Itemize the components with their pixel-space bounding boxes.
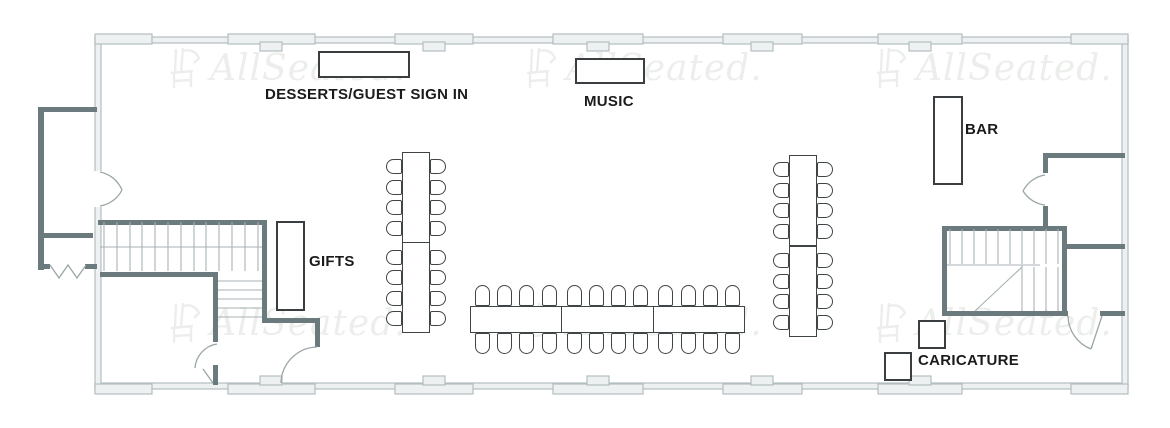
caricature-table-2[interactable] bbox=[884, 352, 912, 381]
label-bar: BAR bbox=[965, 121, 998, 138]
chair[interactable] bbox=[430, 311, 446, 326]
chair[interactable] bbox=[703, 285, 718, 306]
chair[interactable] bbox=[430, 270, 446, 285]
chair[interactable] bbox=[519, 285, 534, 306]
chair[interactable] bbox=[658, 285, 673, 306]
chair[interactable] bbox=[567, 285, 582, 306]
chair[interactable] bbox=[611, 333, 626, 354]
chair[interactable] bbox=[386, 291, 402, 306]
chair[interactable] bbox=[519, 333, 534, 354]
chair[interactable] bbox=[773, 294, 789, 309]
left-door-opening bbox=[93, 171, 103, 207]
chair[interactable] bbox=[633, 333, 648, 354]
label-caricature: CARICATURE bbox=[918, 352, 1019, 369]
chair[interactable] bbox=[773, 253, 789, 268]
chair[interactable] bbox=[386, 180, 402, 195]
chair[interactable] bbox=[658, 333, 673, 354]
chair[interactable] bbox=[386, 221, 402, 236]
chair[interactable] bbox=[681, 333, 696, 354]
floorplan-canvas: DESSERTS/GUEST SIGN IN MUSIC BAR GIFTS C… bbox=[0, 0, 1170, 428]
head-table-divider bbox=[653, 306, 655, 333]
chair[interactable] bbox=[430, 200, 446, 215]
banquet-table-left-divider bbox=[402, 242, 430, 244]
chair[interactable] bbox=[386, 250, 402, 265]
chair[interactable] bbox=[703, 333, 718, 354]
chair[interactable] bbox=[773, 203, 789, 218]
dessert-guest-sign-in-table[interactable] bbox=[318, 51, 410, 78]
chair[interactable] bbox=[475, 285, 490, 306]
chair[interactable] bbox=[386, 200, 402, 215]
chair[interactable] bbox=[773, 162, 789, 177]
chair[interactable] bbox=[817, 183, 833, 198]
label-desserts-guest-sign-in: DESSERTS/GUEST SIGN IN bbox=[265, 86, 468, 103]
head-table[interactable] bbox=[470, 306, 745, 333]
chair[interactable] bbox=[386, 311, 402, 326]
chair[interactable] bbox=[589, 333, 604, 354]
chair[interactable] bbox=[725, 333, 740, 354]
chair[interactable] bbox=[430, 180, 446, 195]
chair[interactable] bbox=[542, 285, 557, 306]
chair[interactable] bbox=[542, 333, 557, 354]
chair[interactable] bbox=[567, 333, 582, 354]
chair[interactable] bbox=[497, 285, 512, 306]
chair[interactable] bbox=[386, 159, 402, 174]
chair[interactable] bbox=[773, 315, 789, 330]
chair[interactable] bbox=[430, 221, 446, 236]
chair[interactable] bbox=[773, 224, 789, 239]
chair[interactable] bbox=[430, 250, 446, 265]
chair[interactable] bbox=[633, 285, 648, 306]
chair[interactable] bbox=[430, 291, 446, 306]
chair[interactable] bbox=[725, 285, 740, 306]
chair[interactable] bbox=[475, 333, 490, 354]
chair[interactable] bbox=[817, 274, 833, 289]
bar-table[interactable] bbox=[933, 96, 963, 185]
banquet-table-right-divider bbox=[789, 245, 817, 247]
chair[interactable] bbox=[611, 285, 626, 306]
label-gifts: GIFTS bbox=[309, 253, 355, 270]
music-table[interactable] bbox=[575, 58, 645, 84]
head-table-divider bbox=[561, 306, 563, 333]
chair[interactable] bbox=[773, 274, 789, 289]
gifts-table[interactable] bbox=[276, 221, 305, 311]
chair[interactable] bbox=[681, 285, 696, 306]
chair[interactable] bbox=[817, 253, 833, 268]
chair[interactable] bbox=[817, 162, 833, 177]
chair[interactable] bbox=[497, 333, 512, 354]
chair[interactable] bbox=[773, 183, 789, 198]
chair[interactable] bbox=[817, 224, 833, 239]
chair[interactable] bbox=[430, 159, 446, 174]
label-music: MUSIC bbox=[584, 93, 634, 110]
chair[interactable] bbox=[386, 270, 402, 285]
chair[interactable] bbox=[817, 315, 833, 330]
caricature-table-1[interactable] bbox=[918, 320, 946, 349]
chair[interactable] bbox=[589, 285, 604, 306]
